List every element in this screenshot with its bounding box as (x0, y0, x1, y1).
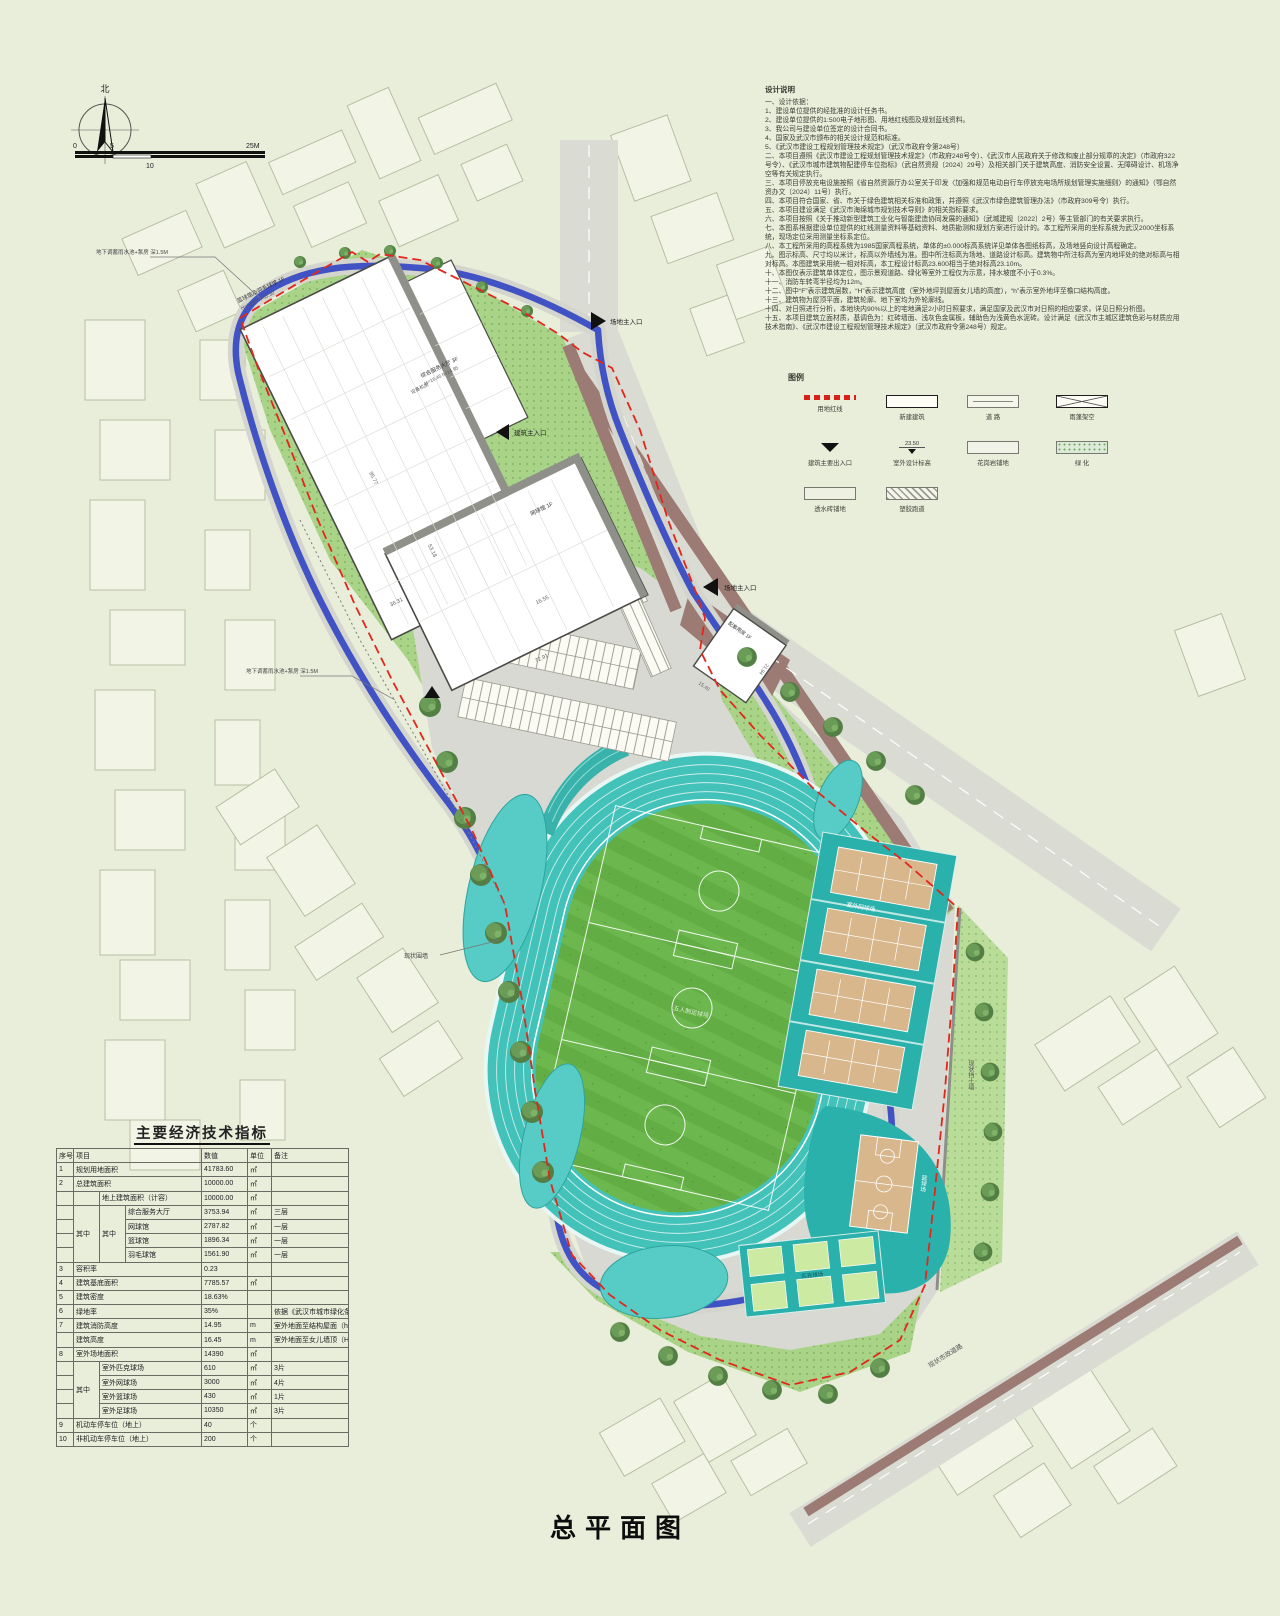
table-row: 8室外场地面积14390㎡ (57, 1347, 349, 1361)
road-swatch-icon (967, 395, 1019, 408)
design-note-line: 二、本项目遵照《武汉市建设工程规划管理技术规定》（市政府248号令）、《武汉市人… (765, 152, 1181, 179)
legend-item-entrance: 建筑主要出入口 (788, 441, 872, 467)
elevation-triangle-icon (908, 449, 916, 454)
design-note-line: 十五、本项目建筑立面材质，基调色为：红砖墙面、浅灰色金属板，辅助色为浅黄色水泥砖… (765, 314, 1181, 332)
legend-item-granite: 花岗岩铺地 (952, 441, 1034, 467)
design-note-line: 4、国家及武汉市颁布的相关设计规范和标准。 (765, 134, 1181, 143)
design-notes-title: 设计说明 (765, 84, 1181, 95)
table-row: 6绿地率35%依据《武汉市城市绿化条例》执行 (57, 1305, 349, 1319)
site-entrance-north-label: 场地主入口 (610, 317, 643, 326)
table-row: 地上建筑面积（计容）10000.00㎡ (57, 1191, 349, 1205)
permeable-swatch-icon (804, 487, 856, 500)
table-row: 室外篮球场430㎡1片 (57, 1390, 349, 1404)
legend-item-elevation: 23.50 室外设计标高 (872, 441, 952, 467)
site-entrance-east-label: 场地主入口 (724, 583, 757, 592)
design-note-line: 十三、建筑物为屋顶平面，建筑轮廓、地下室均为外轮廓线。 (765, 296, 1181, 305)
design-note-line: 六、本项目按照《关于推动新型建筑工业化与智能建造协同发展的通知》（武城建规〔20… (765, 215, 1181, 224)
legend-item-road: 道 路 (952, 395, 1034, 421)
legend-item-new-building: 新建建筑 (872, 395, 952, 421)
table-row: 2总建筑面积10000.00㎡ (57, 1177, 349, 1191)
table-row: 其中其中综合服务大厅3753.94㎡三层 (57, 1205, 349, 1219)
indicators: 主要经济技术指标 序号 项目 数值 单位 备注 1规划用地面积41783.60㎡… (56, 1122, 348, 1447)
design-notes-body: 一、设计依据：1、建设单位提供的经批准的设计任务书。2、建设单位提供的1:500… (765, 98, 1181, 332)
elevation-value: 23.50 (899, 441, 925, 448)
svg-text:0: 0 (73, 143, 77, 150)
design-note-line: 三、本项目停放充电设施按照《省自然资源厅办公室关于印发〈加强和规范电动自行车停放… (765, 179, 1181, 197)
rain-tank-label-2: 地下调蓄雨水池+泵房 深1.5M (246, 667, 318, 675)
redline-swatch-icon (804, 395, 856, 400)
svg-text:北: 北 (100, 84, 109, 94)
table-row: 4建筑基底面积7785.57㎡ (57, 1276, 349, 1290)
table-row: 10非机动车停车位（地上）200个 (57, 1432, 349, 1446)
table-row: 建筑高度16.45m室外地面至女儿墙顶（H） (57, 1333, 349, 1347)
svg-text:5: 5 (110, 143, 114, 150)
site-plan-sheet: 五人制足球场 室外网球场 (0, 0, 1280, 1616)
rain-tank-label-1: 地下调蓄雨水池+泵房 深1.5M (96, 248, 168, 256)
design-notes: 设计说明 一、设计依据：1、建设单位提供的经批准的设计任务书。2、建设单位提供的… (765, 84, 1181, 332)
design-note-line: 十一、消防车转弯半径均为12m。 (765, 278, 1181, 287)
table-row: 室外网球场3000㎡4片 (57, 1376, 349, 1390)
table-row: 其中室外匹克球场610㎡3片 (57, 1361, 349, 1375)
design-note-line: 五、本项目建设满足《武汉市海绵城市规划技术导则》的相关指标要求。 (765, 206, 1181, 215)
granite-swatch-icon (967, 441, 1019, 454)
design-note-line: 3、我公司与建设单位签定的设计合同书。 (765, 125, 1181, 134)
design-note-line: 5、《武汉市建设工程规划管理技术规定》（武汉市政府令第248号） (765, 143, 1181, 152)
design-note-line: 十、本图仅表示建筑单体定位，图示景观道路、绿化等室外工程仅为示意，排水坡度不小于… (765, 269, 1181, 278)
table-row: 7建筑消防高度14.95m室外地面至结构屋面（h） (57, 1319, 349, 1333)
retaining-wall-label: 现状挡土墙 (967, 1060, 974, 1091)
building-entrance-label: 建筑主入口 (514, 428, 547, 437)
legend-item-canopy: 雨蓬架空 (1034, 395, 1130, 421)
new-building-swatch-icon (886, 395, 938, 408)
canopy-swatch-icon (1056, 395, 1108, 408)
design-note-line: 2、建设单位提供的1:500电子地形图、用地红线图及规划蓝线资料。 (765, 116, 1181, 125)
table-row: 5建筑密度18.63% (57, 1290, 349, 1304)
indicators-table: 序号 项目 数值 单位 备注 1规划用地面积41783.60㎡ 2总建筑面积10… (56, 1148, 349, 1447)
legend: 图例 用地红线 新建建筑 道 路 雨蓬架空 建筑主要出入口 (788, 372, 1140, 513)
existing-wall-label: 现状围墙 (404, 952, 428, 960)
design-note-line: 四、本项目符合国家、省、市关于绿色建筑相关标准和政策，并遵照《武汉市绿色建筑管理… (765, 197, 1181, 206)
design-note-line: 十四、对日照进行分析，本地块内90%以上的宅地满足2小时日照要求，满足国家及武汉… (765, 305, 1181, 314)
legend-item-rubber-track: 塑胶跑道 (872, 487, 952, 513)
table-header: 序号 项目 数值 单位 备注 (57, 1149, 349, 1163)
legend-title: 图例 (788, 372, 1140, 383)
legend-item-greenery: 绿 化 (1034, 441, 1130, 467)
design-note-line: 九、图示标高、尺寸均以米计，标高以外墙线为准。图中所注标高为场地、道路设计标高。… (765, 251, 1181, 269)
table-row: 1规划用地面积41783.60㎡ (57, 1163, 349, 1177)
pickleball-courts: 匹克球场 (739, 1231, 886, 1317)
entrance-triangle-icon (821, 443, 839, 452)
svg-text:25M: 25M (246, 143, 260, 150)
design-note-line: 八、本工程所采用的高程系统为1985国家高程系统，单体的±0.000标高系统详见… (765, 242, 1181, 251)
design-note-line: 1、建设单位提供的经批准的设计任务书。 (765, 107, 1181, 116)
table-row: 3容积率0.23 (57, 1262, 349, 1276)
sheet-title: 总平面图 (460, 1508, 780, 1545)
rubber-track-swatch-icon (886, 487, 938, 500)
design-note-line: 一、设计依据： (765, 98, 1181, 107)
svg-text:10: 10 (146, 163, 154, 170)
table-row: 9机动车停车位（地上）40个 (57, 1418, 349, 1432)
indicators-title: 主要经济技术指标 (56, 1122, 348, 1143)
design-note-line: 十二、图中“F”表示建筑层数，“H”表示建筑高度（室外地坪到屋面女儿墙的高度），… (765, 287, 1181, 296)
design-note-line: 七、本图系根据建设单位提供的红线测量资料等基础资料、地质勘测和规划方案进行设计的… (765, 224, 1181, 242)
legend-item-permeable: 透水砖铺地 (788, 487, 872, 513)
legend-item-redline: 用地红线 (788, 395, 872, 421)
greenery-swatch-icon (1056, 441, 1108, 454)
table-row: 室外足球场10350㎡3片 (57, 1404, 349, 1418)
existing-road-label: 现状市政道路 (926, 1341, 964, 1370)
